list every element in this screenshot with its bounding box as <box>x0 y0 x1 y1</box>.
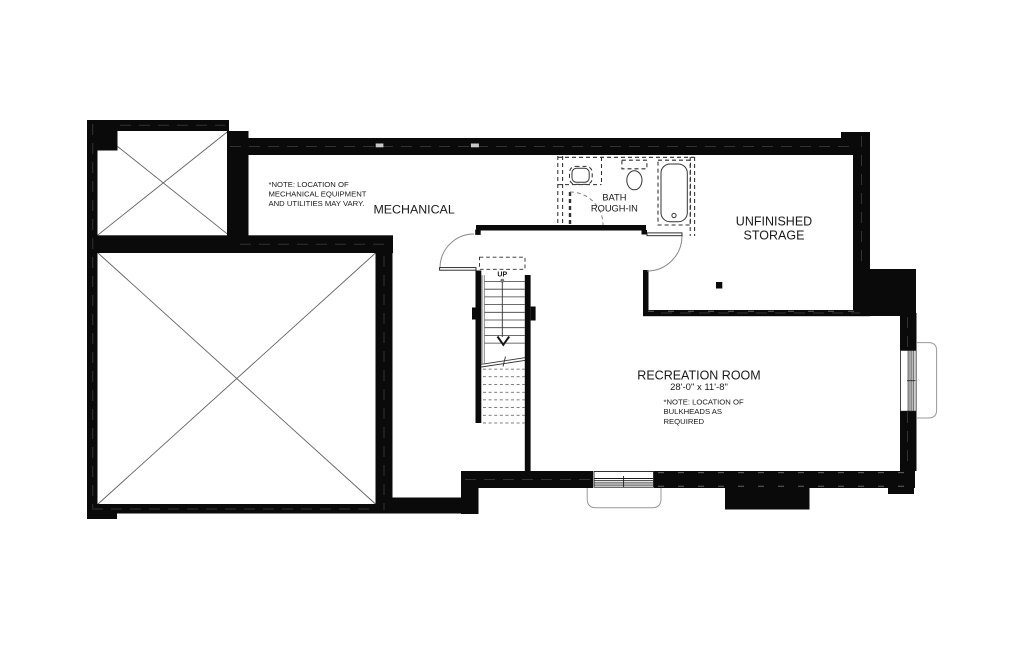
svg-text:MECHANICAL: MECHANICAL <box>373 202 454 216</box>
svg-text:AND UTILITIES MAY VARY.: AND UTILITIES MAY VARY. <box>269 199 365 208</box>
svg-text:STORAGE: STORAGE <box>744 228 805 242</box>
svg-text:MECHANICAL EQUIPMENT: MECHANICAL EQUIPMENT <box>269 190 367 199</box>
svg-text:BULKHEADS AS: BULKHEADS AS <box>664 407 723 416</box>
svg-text:*NOTE: LOCATION OF: *NOTE: LOCATION OF <box>269 180 349 189</box>
svg-text:28'-0" x 11'-8": 28'-0" x 11'-8" <box>670 382 728 393</box>
svg-text:UP: UP <box>497 271 507 278</box>
svg-text:REQUIRED: REQUIRED <box>664 417 705 426</box>
svg-text:UNFINISHED: UNFINISHED <box>736 214 812 228</box>
svg-text:BATH: BATH <box>602 193 626 203</box>
svg-text:*NOTE: LOCATION OF: *NOTE: LOCATION OF <box>664 397 744 406</box>
svg-text:RECREATION ROOM: RECREATION ROOM <box>637 369 760 383</box>
svg-text:ROUGH-IN: ROUGH-IN <box>591 203 638 213</box>
